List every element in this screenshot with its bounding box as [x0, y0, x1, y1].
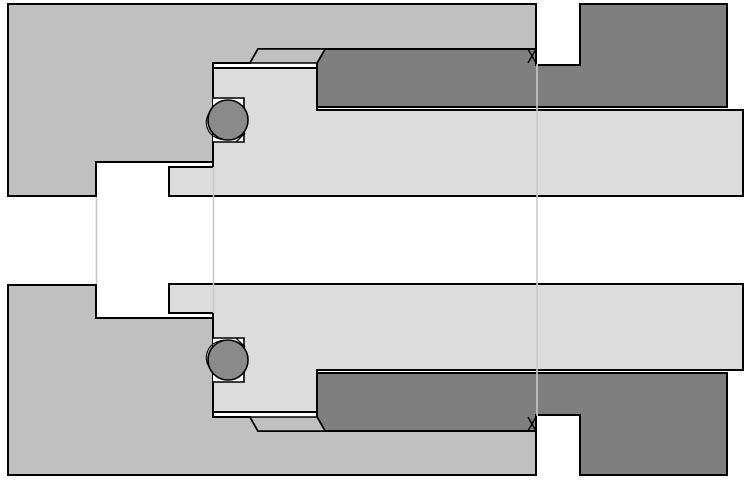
chamfer-collar-lower [250, 417, 325, 431]
cad-drawing-canvas [0, 0, 750, 480]
oring-lower [208, 340, 248, 380]
oring-upper [208, 100, 248, 140]
chamfer-collar-upper [250, 49, 325, 63]
cross-section-drawing [0, 0, 750, 480]
